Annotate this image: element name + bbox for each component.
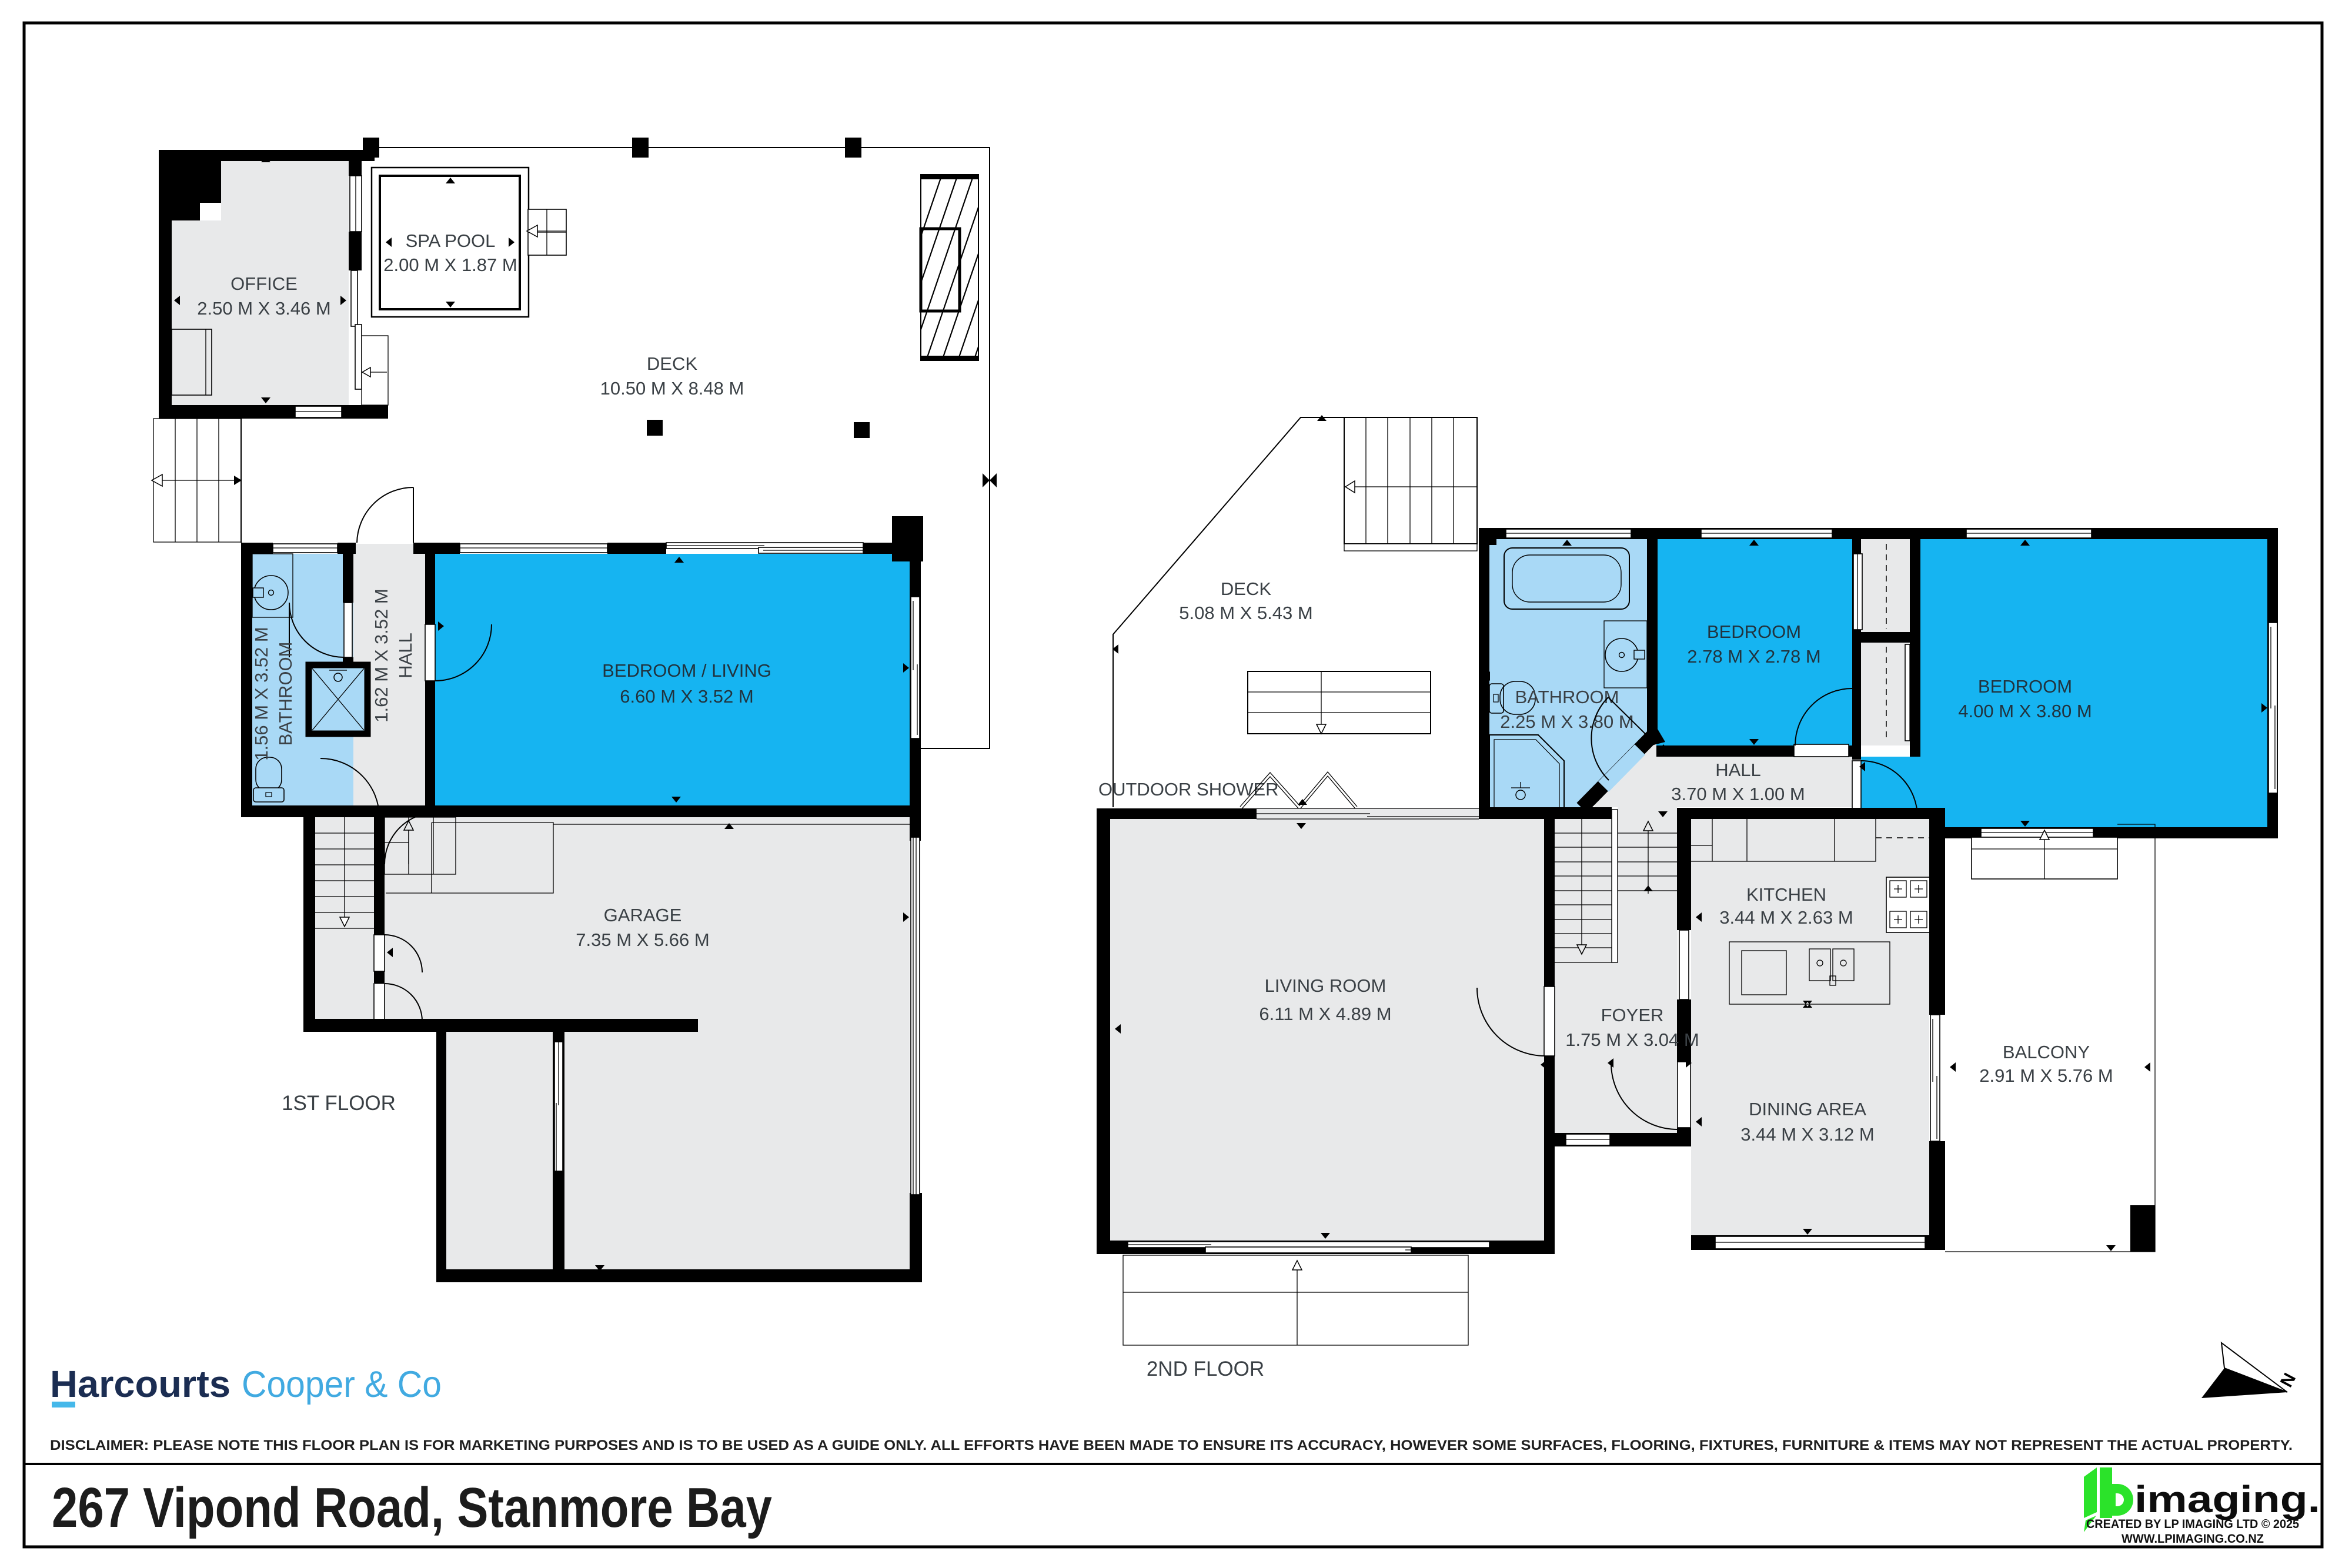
svg-text:10.50 M X 8.48 M: 10.50 M X 8.48 M <box>600 378 744 399</box>
svg-text:SPA POOL: SPA POOL <box>406 230 496 251</box>
svg-text:BEDROOM / LIVING: BEDROOM / LIVING <box>602 660 771 681</box>
svg-text:DECK: DECK <box>1221 579 1271 599</box>
svg-text:HALL: HALL <box>1715 760 1761 780</box>
svg-text:Cooper & Co: Cooper & Co <box>242 1364 442 1405</box>
svg-text:6.11 M X 4.89 M: 6.11 M X 4.89 M <box>1259 1004 1391 1024</box>
svg-text:267 Vipond Road, Stanmore Bay: 267 Vipond Road, Stanmore Bay <box>52 1476 772 1539</box>
svg-text:GARAGE: GARAGE <box>604 905 682 925</box>
svg-text:2.91 M X 5.76 M: 2.91 M X 5.76 M <box>1979 1065 2113 1086</box>
svg-text:3.44 M X 2.63 M: 3.44 M X 2.63 M <box>1719 907 1853 928</box>
svg-text:BEDROOM: BEDROOM <box>1707 621 1801 642</box>
svg-text:1ST FLOOR: 1ST FLOOR <box>282 1092 396 1115</box>
svg-text:3.70 M X 1.00 M: 3.70 M X 1.00 M <box>1671 784 1805 804</box>
svg-text:DISCLAIMER: PLEASE NOTE THIS F: DISCLAIMER: PLEASE NOTE THIS FLOOR PLAN … <box>50 1437 2293 1453</box>
svg-text:2.00 M X 1.87 M: 2.00 M X 1.87 M <box>383 255 517 275</box>
svg-text:DECK: DECK <box>647 353 697 374</box>
svg-text:CREATED BY LP IMAGING LTD © 20: CREATED BY LP IMAGING LTD © 2025 <box>2086 1517 2299 1531</box>
svg-text:FOYER: FOYER <box>1601 1005 1664 1025</box>
svg-text:3.44 M X 3.12 M: 3.44 M X 3.12 M <box>1740 1124 1874 1145</box>
svg-text:imaging.: imaging. <box>2134 1478 2320 1520</box>
svg-text:OUTDOOR SHOWER: OUTDOOR SHOWER <box>1098 779 1279 800</box>
svg-text:2.25 M X 3.80 M: 2.25 M X 3.80 M <box>1500 711 1633 732</box>
svg-text:1.56 M X 3.52 M: 1.56 M X 3.52 M <box>251 627 272 760</box>
svg-text:BATHROOM: BATHROOM <box>1515 687 1619 707</box>
svg-text:HALL: HALL <box>395 633 416 678</box>
svg-text:6.60 M X 3.52 M: 6.60 M X 3.52 M <box>620 686 753 707</box>
svg-text:4.00 M X 3.80 M: 4.00 M X 3.80 M <box>1958 701 2092 721</box>
svg-text:2.78 M X 2.78 M: 2.78 M X 2.78 M <box>1687 646 1820 667</box>
svg-text:KITCHEN: KITCHEN <box>1746 884 1826 905</box>
svg-text:2ND FLOOR: 2ND FLOOR <box>1147 1358 1264 1380</box>
svg-text:WWW.LPIMAGING.CO.NZ: WWW.LPIMAGING.CO.NZ <box>2122 1532 2264 1546</box>
svg-text:BALCONY: BALCONY <box>2003 1042 2090 1062</box>
svg-text:BATHROOM: BATHROOM <box>275 642 296 746</box>
svg-text:7.35 M X 5.66 M: 7.35 M X 5.66 M <box>576 930 709 950</box>
svg-text:BEDROOM: BEDROOM <box>1978 676 2072 697</box>
svg-text:Harcourts: Harcourts <box>50 1363 230 1405</box>
svg-text:DINING AREA: DINING AREA <box>1749 1099 1866 1119</box>
svg-text:LIVING ROOM: LIVING ROOM <box>1265 975 1387 996</box>
svg-text:1.75 M X 3.04 M: 1.75 M X 3.04 M <box>1565 1029 1699 1050</box>
svg-text:2.50 M X 3.46 M: 2.50 M X 3.46 M <box>197 298 330 319</box>
svg-text:OFFICE: OFFICE <box>230 273 298 294</box>
svg-text:1.62 M X 3.52 M: 1.62 M X 3.52 M <box>371 589 392 722</box>
svg-text:5.08 M X 5.43 M: 5.08 M X 5.43 M <box>1179 603 1312 623</box>
